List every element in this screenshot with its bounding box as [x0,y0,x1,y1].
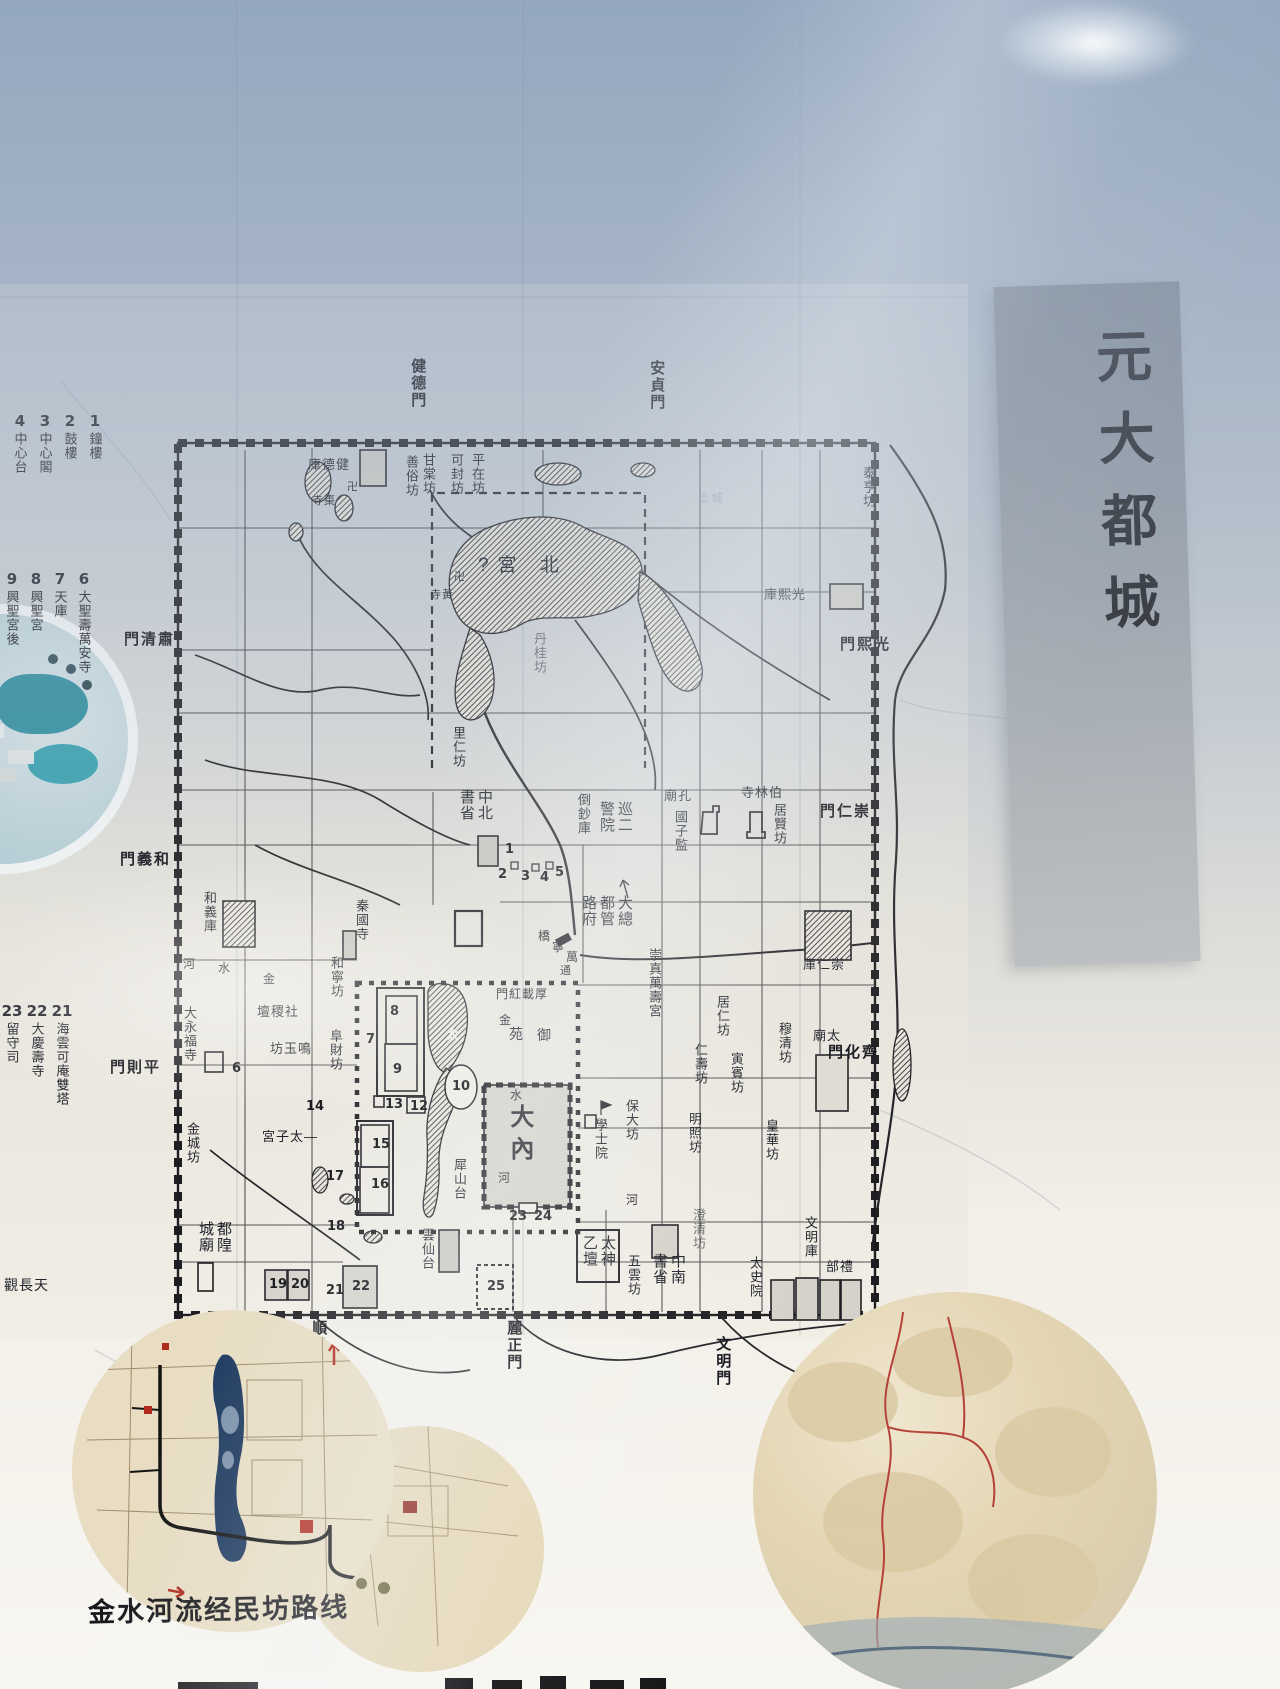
wanningqiao-bridge [555,933,572,947]
inset-jinshui-route-map [72,1310,394,1632]
river-east [872,445,946,1250]
danei-wall [484,1085,570,1213]
streams [195,490,875,1395]
inset-map-terrain [753,1292,1157,1689]
inset-caption: 金水河流经民坊路线 [88,1585,350,1629]
museum-display-photo: 健德門安貞門善俗坊甘棠坊可封坊平在坊泰亨坊丹桂坊里仁坊倒鈔庫國子監居賢坊崇真萬壽… [0,0,1280,1689]
temple-icons [601,806,765,1115]
lakes [289,462,911,1243]
title-banner: 元大都城 [993,281,1200,967]
cropped-caption-fragments [178,1676,666,1689]
island-wansui-shan [445,1065,477,1109]
kongmiao-building-icon [701,806,719,834]
flag-icon [601,1101,611,1115]
decorative-dot [378,1582,390,1594]
pointer-arrow [620,880,629,898]
decorative-dot [356,1578,367,1589]
page-title: 元大都城 [1079,326,1170,656]
